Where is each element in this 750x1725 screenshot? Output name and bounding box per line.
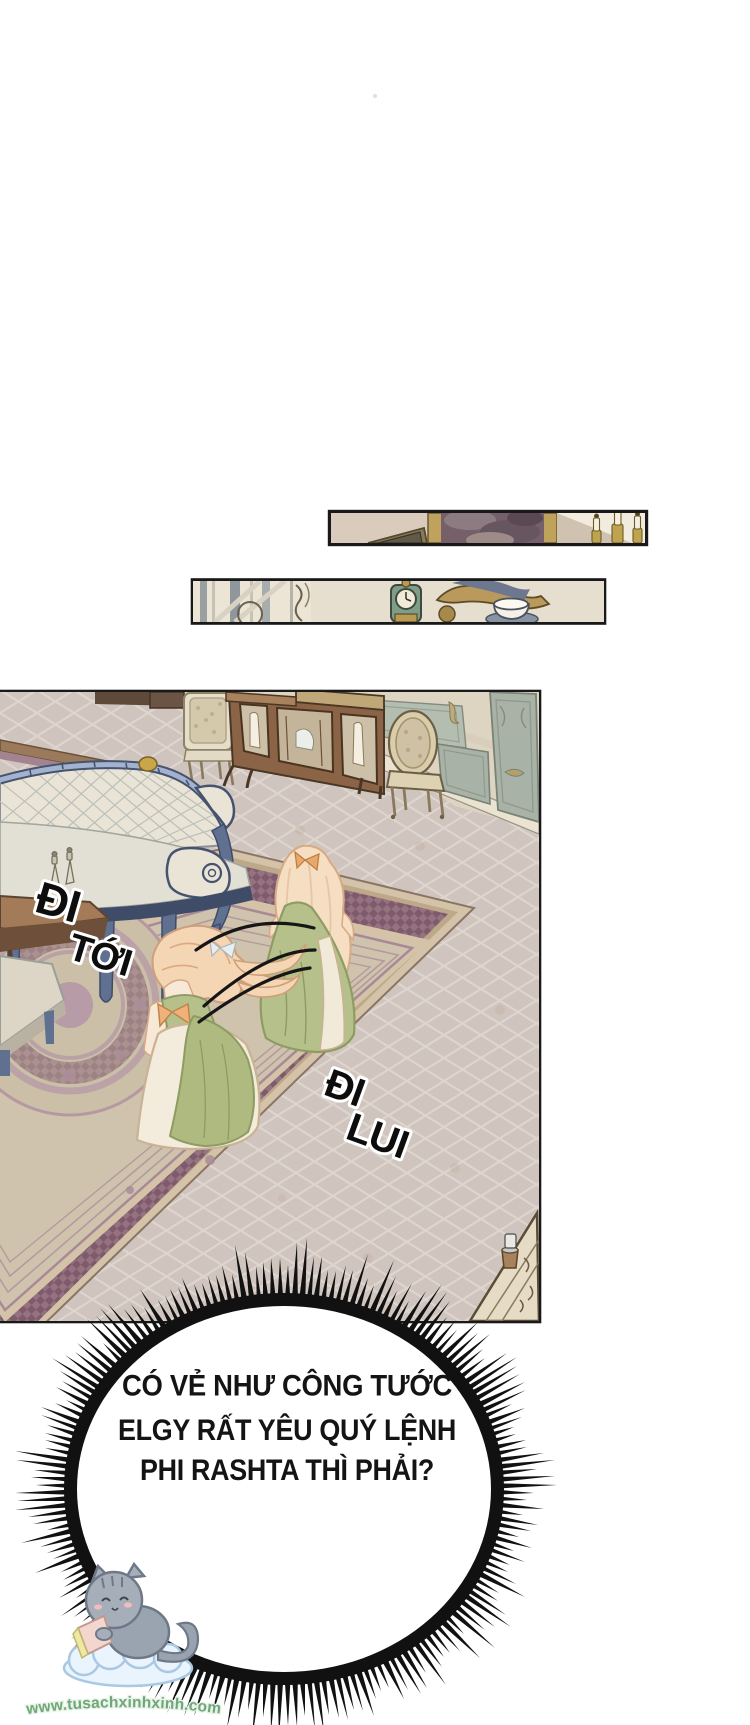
- svg-text:ELGY RẤT YÊU QUÝ LỆNH: ELGY RẤT YÊU QUÝ LỆNH: [118, 1414, 456, 1447]
- svg-text:PHI RASHTA THÌ PHẢI?: PHI RASHTA THÌ PHẢI?: [140, 1453, 434, 1488]
- svg-text:CÓ VẺ NHƯ CÔNG TƯỚC: CÓ VẺ NHƯ CÔNG TƯỚC: [122, 1368, 452, 1403]
